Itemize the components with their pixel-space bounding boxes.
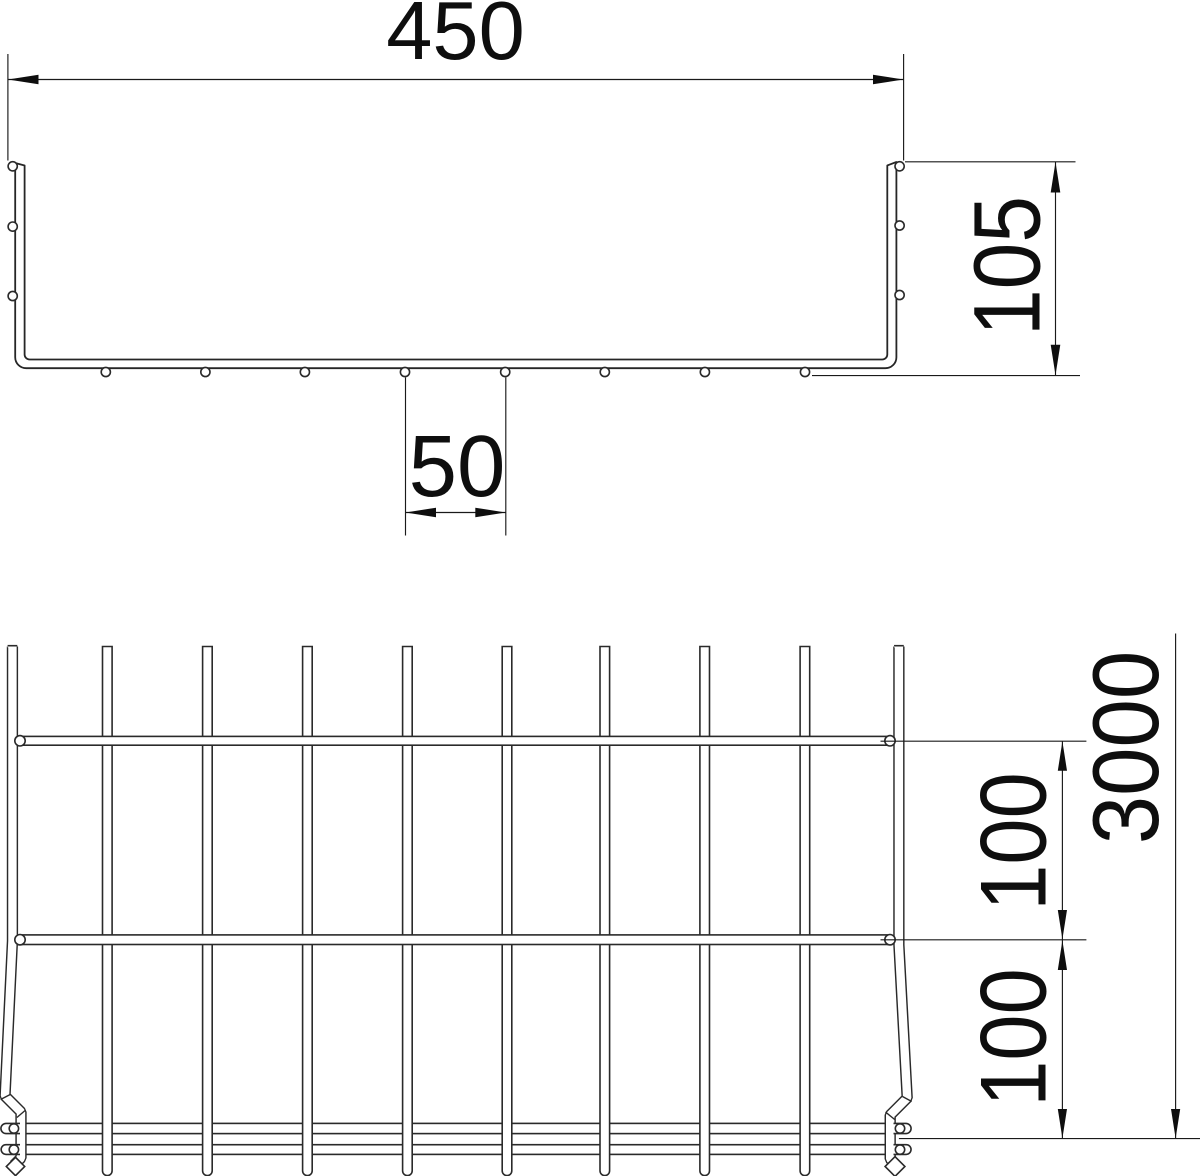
- svg-text:100: 100: [961, 968, 1066, 1106]
- svg-text:105: 105: [954, 196, 1060, 336]
- svg-text:50: 50: [409, 418, 506, 515]
- svg-text:450: 450: [386, 0, 524, 77]
- svg-text:3000: 3000: [1074, 651, 1179, 845]
- svg-text:100: 100: [961, 772, 1066, 910]
